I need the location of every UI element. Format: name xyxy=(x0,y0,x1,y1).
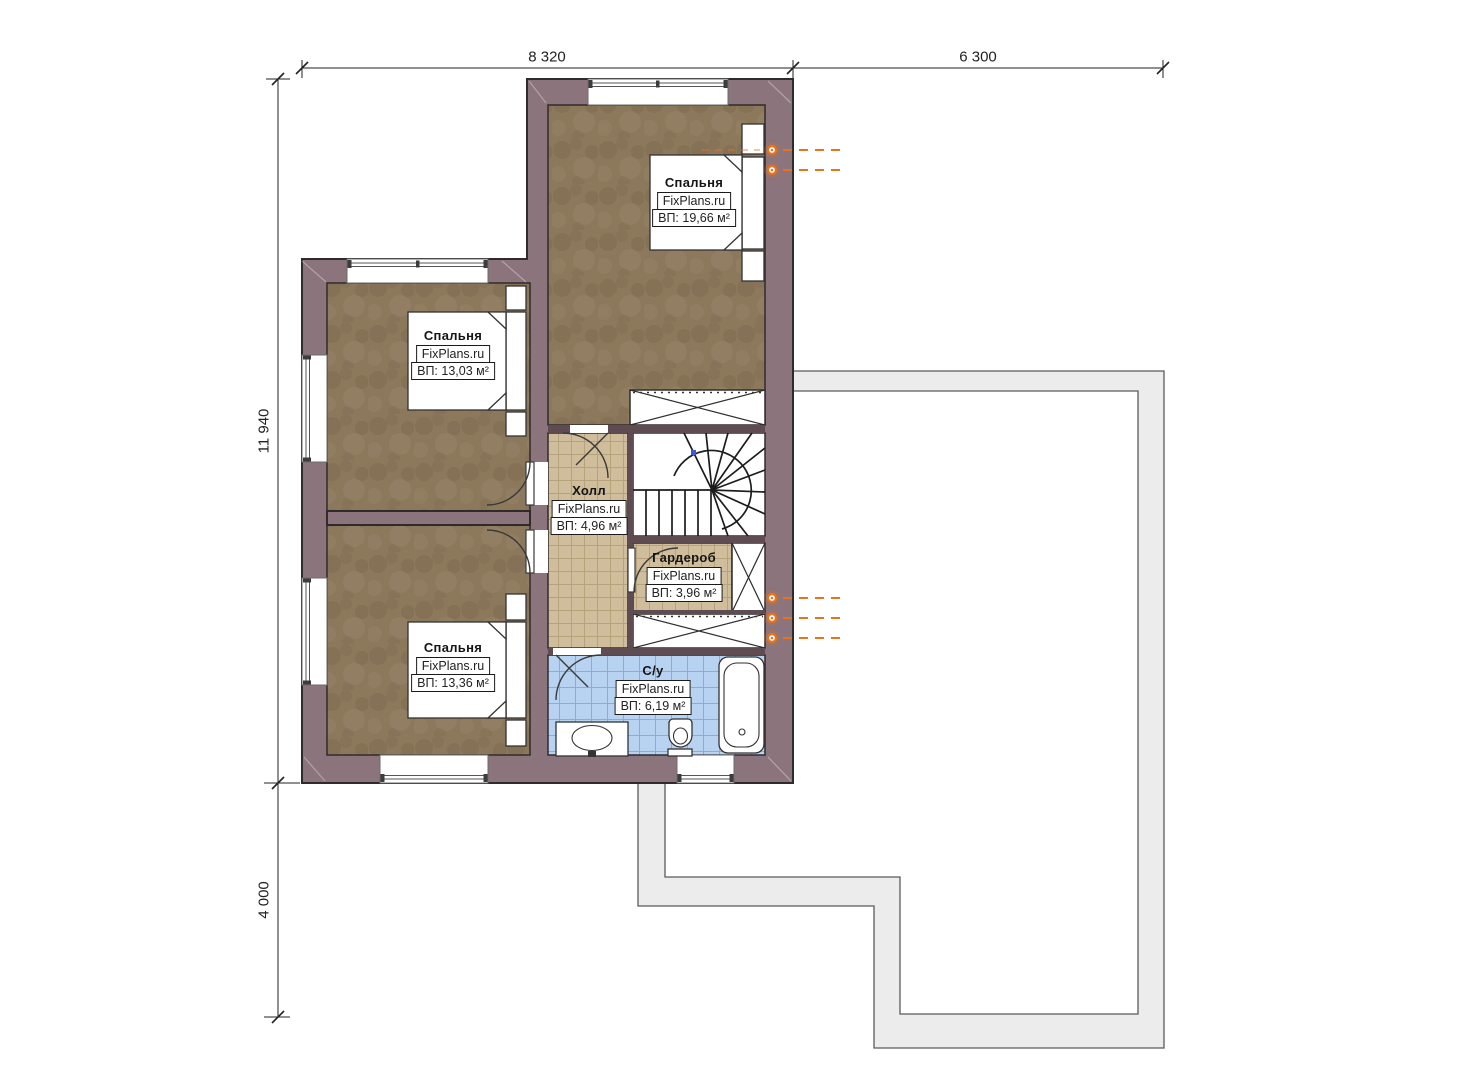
area-box: ВП: 19,66 м² xyxy=(652,209,736,227)
room-name: Спальня xyxy=(424,640,482,655)
room-label-hall: Холл FixPlans.ru ВП: 4,96 м² xyxy=(551,483,628,535)
sconce-icon xyxy=(764,162,846,178)
door-opening-bathroom xyxy=(553,648,601,655)
watermark-box: FixPlans.ru xyxy=(616,680,691,698)
area-box: ВП: 4,96 м² xyxy=(551,517,628,535)
room-label-bathroom: С/у FixPlans.ru ВП: 6,19 м² xyxy=(615,663,692,715)
watermark-box: FixPlans.ru xyxy=(416,345,491,363)
door-opening-bedroom-top xyxy=(570,425,608,433)
floor-hall xyxy=(548,433,628,648)
watermark-box: FixPlans.ru xyxy=(416,657,491,675)
room-name: Спальня xyxy=(665,175,723,190)
floor-bedroom-top xyxy=(548,105,765,425)
watermark-box: FixPlans.ru xyxy=(647,567,722,585)
window-wing-top xyxy=(347,259,488,283)
window-left-upper xyxy=(302,355,327,462)
wall-wardrobe-closet xyxy=(633,610,765,614)
floor-stairwell xyxy=(633,433,765,536)
area-box: ВП: 13,36 м² xyxy=(411,674,495,692)
area-box: ВП: 3,96 м² xyxy=(646,584,723,602)
bathtub xyxy=(719,657,764,753)
room-name: Холл xyxy=(572,483,606,498)
floor-plan-page: Спальня FixPlans.ru ВП: 19,66 м² Спальня… xyxy=(0,0,1473,1080)
toilet xyxy=(668,719,692,756)
floor-plan-canvas xyxy=(0,0,1473,1080)
sconce-icon xyxy=(764,610,846,626)
room-name: Спальня xyxy=(424,328,482,343)
vanity-sink xyxy=(556,722,628,757)
closet-wardrobe-bottom xyxy=(633,614,765,648)
room-name: С/у xyxy=(642,663,663,678)
closet-bedroom-top xyxy=(630,390,765,425)
closet-wardrobe-side xyxy=(732,543,765,612)
window-left-lower xyxy=(302,578,327,685)
area-box: ВП: 6,19 м² xyxy=(615,697,692,715)
room-label-bedroom-left-bottom: Спальня FixPlans.ru ВП: 13,36 м² xyxy=(411,640,495,692)
sconce-icon xyxy=(764,590,846,606)
dimension-left-upper: 11 940 xyxy=(256,409,273,454)
wall-hall-stairs xyxy=(628,433,633,648)
watermark-box: FixPlans.ru xyxy=(552,500,627,518)
sconce-icon xyxy=(764,630,846,646)
room-label-wardrobe: Гардероб FixPlans.ru ВП: 3,96 м² xyxy=(646,550,723,602)
stair-direction-marker xyxy=(691,450,696,455)
area-box: ВП: 13,03 м² xyxy=(411,362,495,380)
dimension-top-left: 8 320 xyxy=(528,49,566,66)
dimension-left-lower: 4 000 xyxy=(256,881,273,919)
window-bottom-bedroom xyxy=(380,755,488,783)
room-label-bedroom-left-top: Спальня FixPlans.ru ВП: 13,03 м² xyxy=(411,328,495,380)
dimension-top-right: 6 300 xyxy=(959,49,997,66)
watermark-box: FixPlans.ru xyxy=(657,192,732,210)
window-bottom-bathroom xyxy=(677,755,734,783)
wall-between-left-bedrooms xyxy=(327,511,530,525)
wall-stairs-wardrobe xyxy=(633,536,765,543)
room-name: Гардероб xyxy=(652,550,716,565)
dimension-line-top xyxy=(296,60,1169,78)
window-top-right-block xyxy=(588,79,728,105)
room-label-bedroom-top: Спальня FixPlans.ru ВП: 19,66 м² xyxy=(652,175,736,227)
